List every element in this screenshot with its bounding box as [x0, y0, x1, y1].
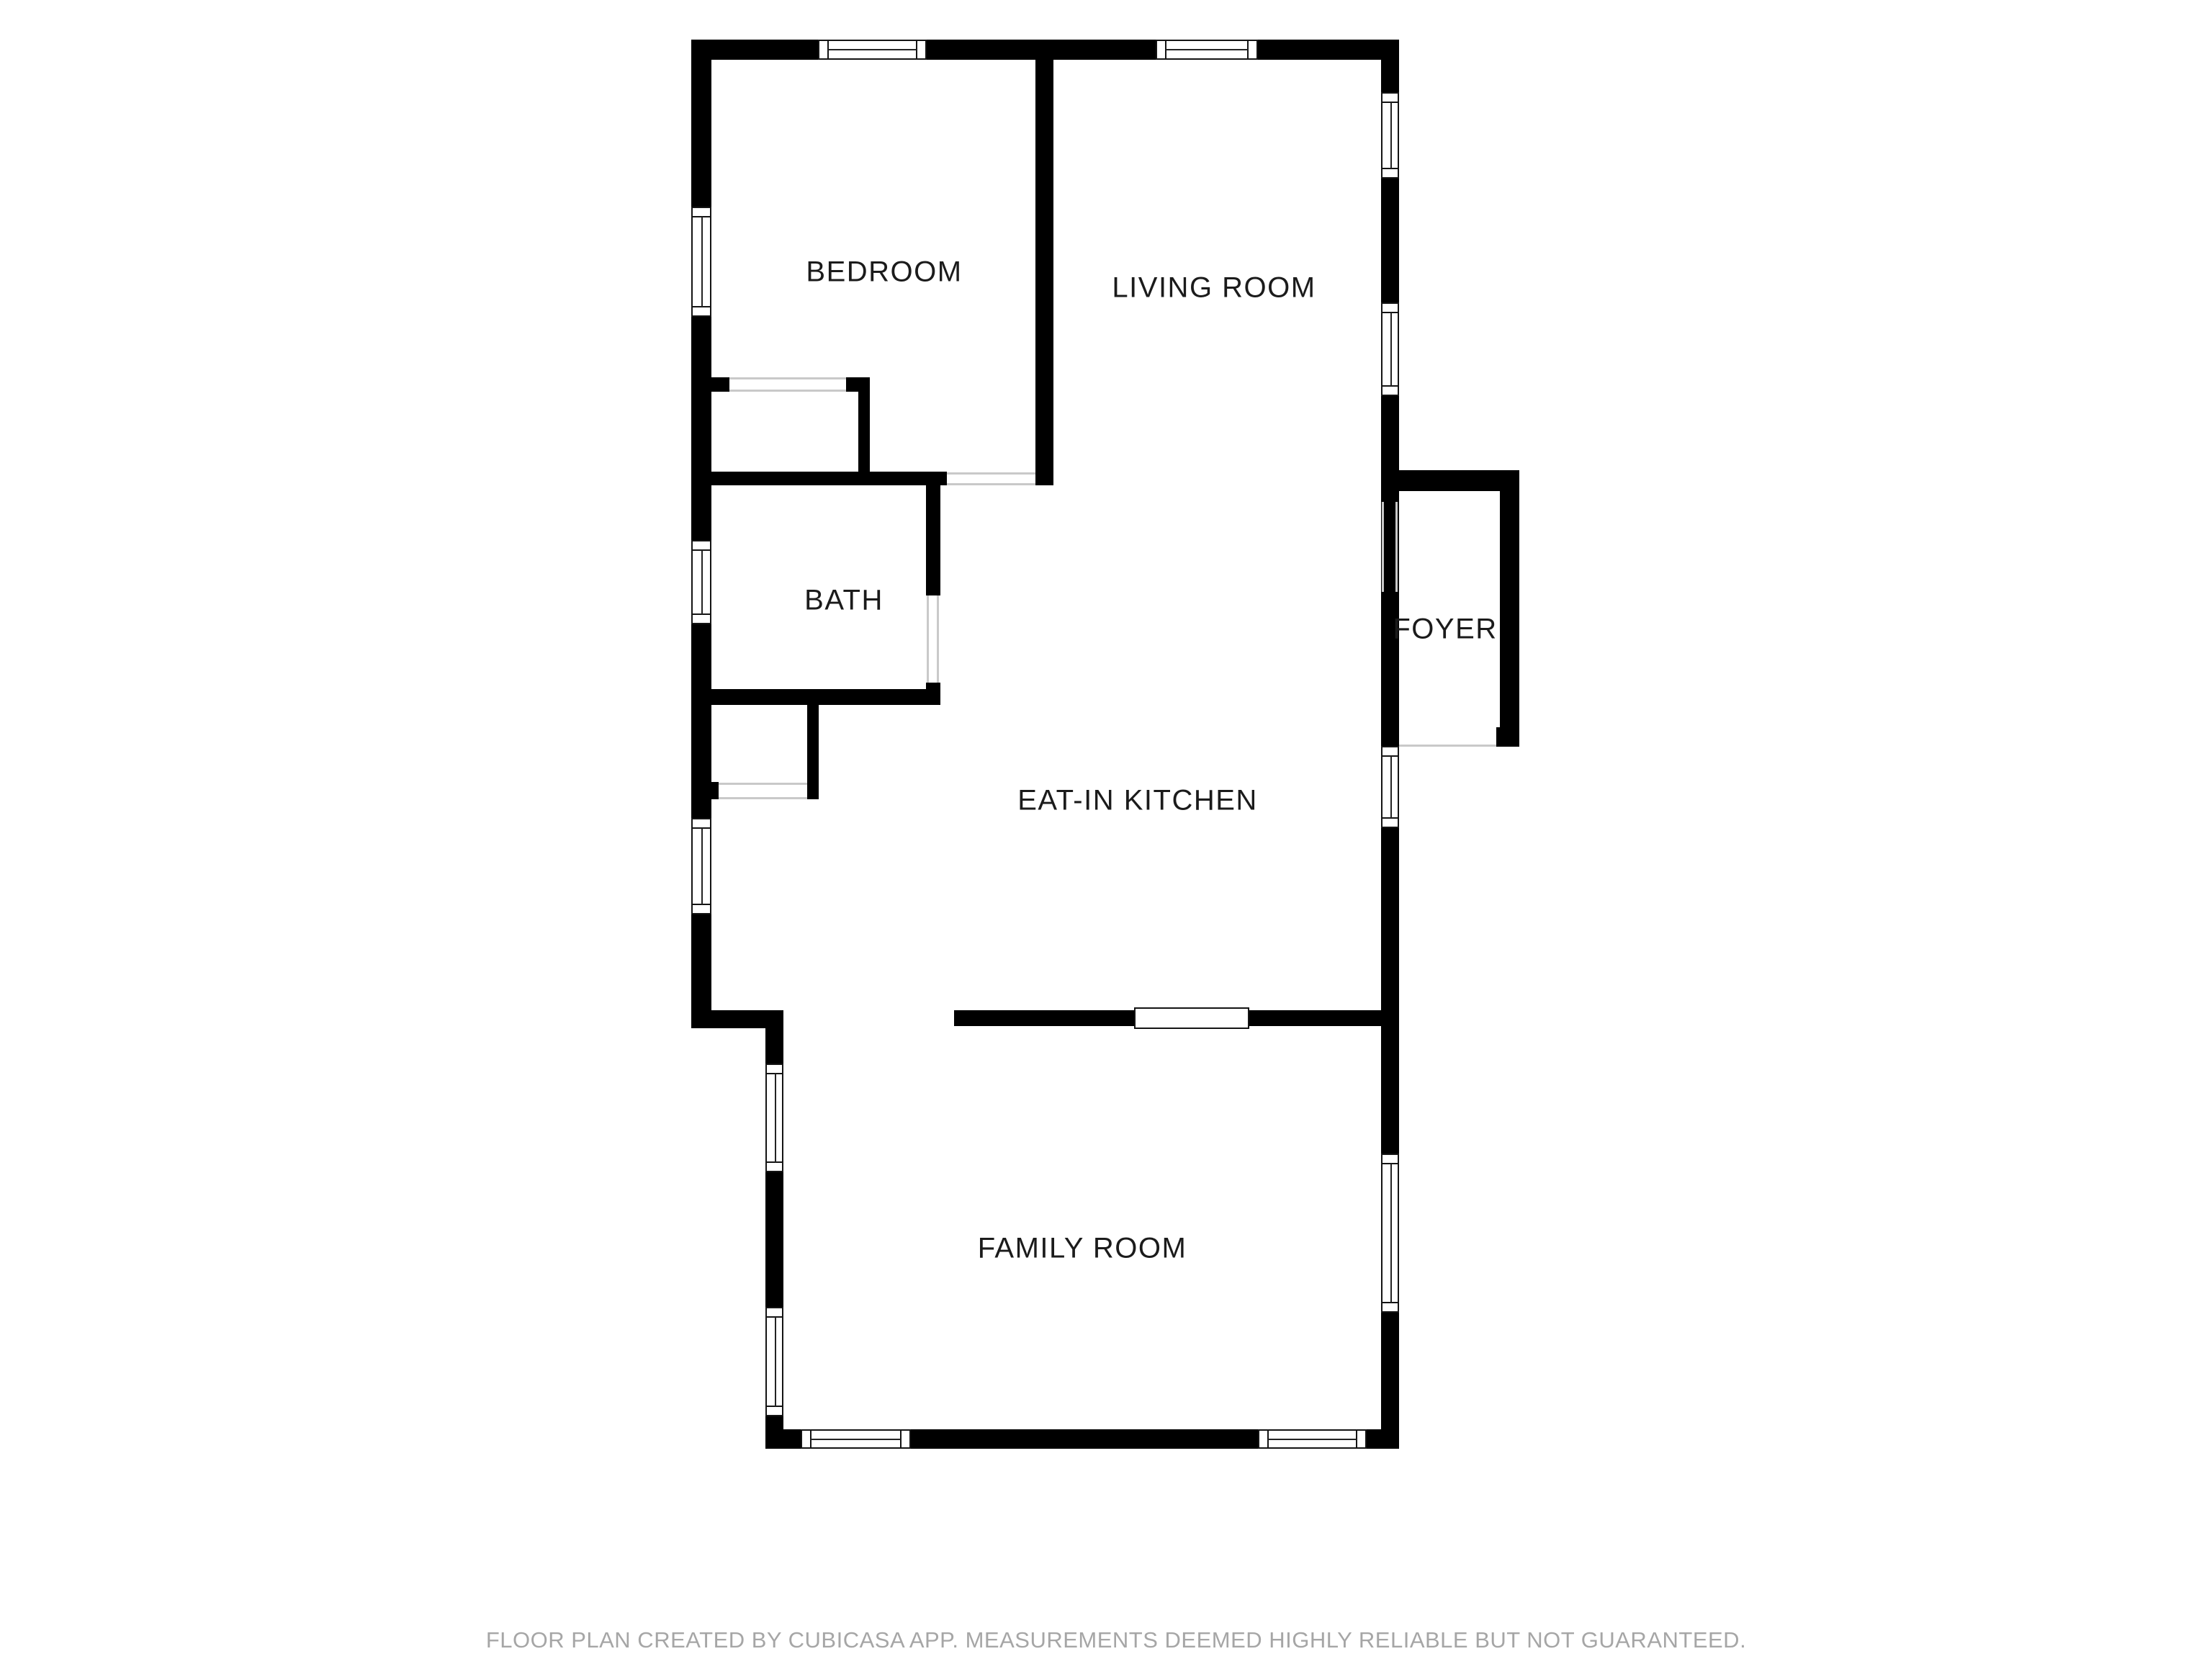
room-label-family: FAMILY ROOM: [978, 1233, 1187, 1265]
wall-segment: [1496, 727, 1519, 747]
window-mullion: [701, 550, 703, 614]
door-opening-line: [1399, 745, 1496, 747]
door-opening-line: [927, 595, 929, 683]
window-symbol: [1381, 92, 1399, 179]
window-mullion: [1390, 1164, 1392, 1303]
room-label-bath: BATH: [804, 585, 884, 617]
door-opening-line: [937, 595, 939, 683]
door-opening-line: [729, 377, 846, 379]
window-mullion: [811, 1439, 901, 1440]
wall-segment: [846, 377, 870, 392]
floor-plan: BEDROOMLIVING ROOMBATHFOYEREAT-IN KITCHE…: [0, 0, 2212, 1659]
room-label-foyer: FOYER: [1393, 613, 1497, 646]
window-mullion: [1166, 49, 1248, 50]
wall-segment: [926, 485, 940, 595]
window-symbol: [1381, 1154, 1399, 1313]
window-symbol: [691, 540, 711, 624]
window-symbol: [691, 207, 711, 317]
room-label-bedroom: BEDROOM: [806, 256, 962, 289]
window-mullion: [1390, 756, 1392, 818]
door-opening-line: [947, 472, 1035, 475]
door-opening-line: [1395, 502, 1398, 592]
window-mullion: [701, 217, 703, 307]
door-opening-line: [719, 783, 807, 785]
disclaimer-text: FLOOR PLAN CREATED BY CUBICASA APP. MEAS…: [486, 1627, 1746, 1653]
window-symbol: [801, 1429, 911, 1449]
door-opening-line: [719, 797, 807, 799]
window-mullion: [828, 49, 917, 50]
window-symbol: [818, 40, 927, 60]
window-mullion: [701, 828, 703, 904]
wall-segment: [711, 782, 719, 799]
wall-segment: [691, 377, 729, 392]
door-opening-line: [1382, 502, 1384, 592]
room-label-living: LIVING ROOM: [1112, 272, 1316, 305]
window-symbol: [1258, 1429, 1367, 1449]
window-symbol: [765, 1064, 783, 1172]
door-opening-line: [947, 483, 1035, 485]
room-label-kitchen: EAT-IN KITCHEN: [1017, 785, 1258, 817]
door-opening-line: [729, 390, 846, 392]
floor-plan-page: BEDROOMLIVING ROOMBATHFOYEREAT-IN KITCHE…: [0, 0, 2212, 1659]
window-mullion: [1390, 313, 1392, 386]
wall-segment: [807, 705, 819, 799]
window-mullion: [1268, 1439, 1357, 1440]
wall-segment: [1500, 470, 1519, 747]
window-mullion: [775, 1317, 776, 1406]
window-symbol: [691, 818, 711, 914]
window-symbol: [1156, 40, 1258, 60]
wall-segment: [691, 689, 940, 705]
pass-through-opening: [1134, 1007, 1249, 1029]
wall-segment: [691, 472, 947, 485]
wall-segment: [1035, 40, 1053, 485]
wall-segment: [858, 392, 870, 473]
window-mullion: [775, 1074, 776, 1162]
window-symbol: [765, 1307, 783, 1416]
window-symbol: [1381, 302, 1399, 396]
window-symbol: [1381, 746, 1399, 828]
window-mullion: [1390, 102, 1392, 168]
